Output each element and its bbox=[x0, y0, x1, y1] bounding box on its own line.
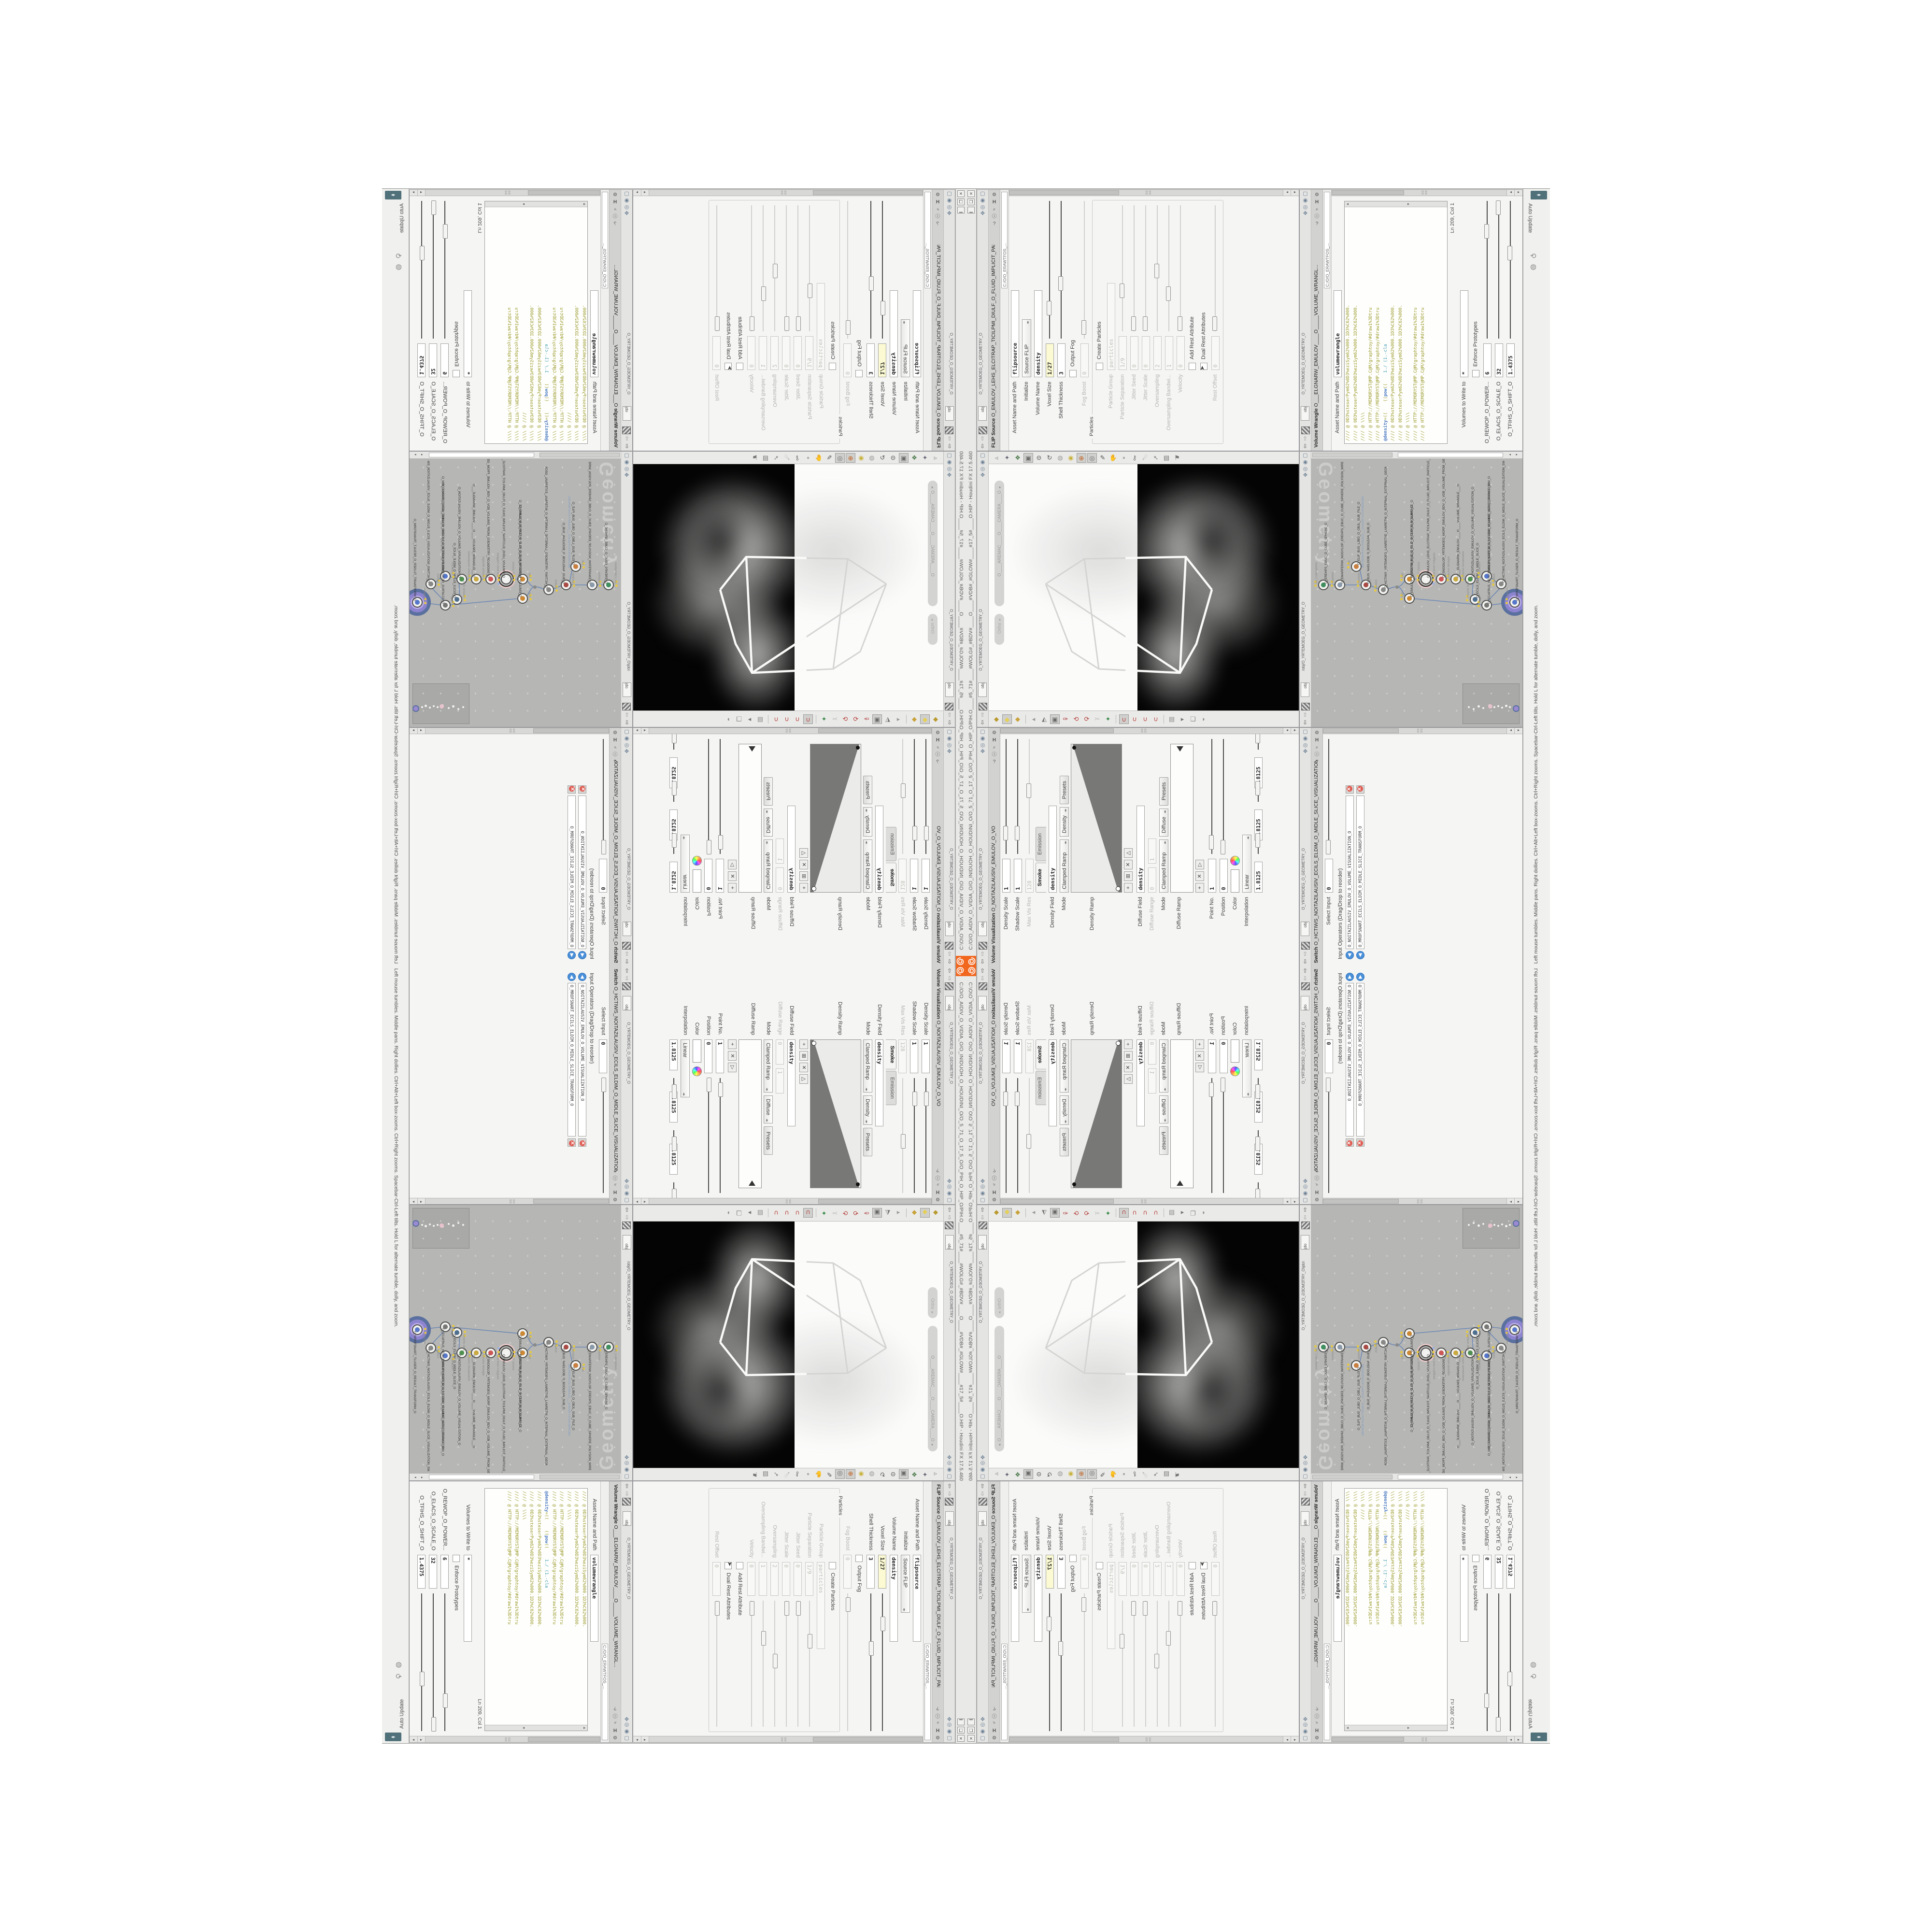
param-field-rest-offset[interactable]: 0 bbox=[1211, 1562, 1220, 1596]
param-field-rest-offset[interactable]: 0 bbox=[713, 1562, 721, 1596]
param-slider[interactable] bbox=[1510, 1593, 1511, 1731]
param-slider[interactable] bbox=[1061, 201, 1062, 339]
param-field-particle-separation[interactable]: 1/9 bbox=[1119, 336, 1127, 370]
pane-layout-icons[interactable]: ▢◉◎✥ bbox=[944, 453, 955, 479]
pane-up-arrow-icon[interactable]: ⇧ bbox=[623, 435, 631, 442]
viewport-render[interactable]: O____AREMAC____O____CAMERA____O ▾ Ortho … bbox=[989, 1222, 1299, 1468]
checkbox-dual-rest-attributes[interactable] bbox=[1200, 1562, 1207, 1569]
shade-icon[interactable]: ◆ bbox=[992, 714, 1001, 724]
param-field-particle-group[interactable]: particles bbox=[817, 1562, 825, 1649]
range-field[interactable]: 0 bbox=[776, 1039, 784, 1065]
network-node[interactable]: O_EMULOV_ROIRETNI_PILC_O_CLIP_INTERIOR_V… bbox=[1404, 593, 1415, 604]
view-star-icon[interactable]: ✦ bbox=[1002, 1470, 1012, 1479]
pane-tab-strip[interactable]: ⚙H⌕ⓘ? Switch O_HCTIWS_NOITAZILAUSIV_ECIL… bbox=[1311, 966, 1323, 1204]
network-node[interactable]: O_ECAFRUS_HTIW_EMULOV_EGREM_O_MERGE_VOLU… bbox=[440, 1321, 451, 1332]
network-node[interactable]: O_EREHPS_EBUC_O_CUBE_SPHERE_Oan_CubeSphe… bbox=[1318, 580, 1329, 590]
checkbox-dual-rest-attributes[interactable] bbox=[725, 363, 732, 370]
tab-smoke[interactable]: Smoke bbox=[886, 863, 896, 893]
pane-header-icons[interactable]: ⚙H⌕ⓘ? bbox=[989, 1166, 1000, 1203]
param-slider[interactable] bbox=[720, 1078, 721, 1193]
network-node[interactable]: O_MROFSNART_TLUSER_O_RESULT_TRANSFORM_OT… bbox=[1509, 1324, 1520, 1335]
pane-layout-icons[interactable]: ▢◉◎✥ bbox=[944, 1177, 955, 1203]
presets-button[interactable]: Presets bbox=[864, 1128, 873, 1156]
obj-badge[interactable]: obj bbox=[623, 1511, 631, 1526]
param-field-oversampling-bandwi-[interactable]: 1 bbox=[1165, 336, 1173, 370]
param-field-asset-name-and-path[interactable]: volumewrangle bbox=[591, 290, 599, 377]
cards-icon[interactable]: ▤ bbox=[1162, 453, 1171, 463]
camera-selector-pill[interactable]: O____AREMAC____O____CAMERA____O ▾ bbox=[994, 1326, 1004, 1451]
view-star-icon[interactable]: ✦ bbox=[1002, 453, 1012, 463]
param-field-jitter-seed[interactable]: 0 bbox=[1130, 336, 1138, 370]
network-node[interactable]: O_HCTIWS_NOITAZILAUSIV_ECILS_ELDIM_O_MID… bbox=[1496, 579, 1506, 589]
param-field-shadow-scale[interactable]: 1 bbox=[1014, 1039, 1022, 1073]
param-slider[interactable] bbox=[847, 201, 848, 339]
pane-up-arrow-icon[interactable]: ⇧ bbox=[946, 951, 953, 957]
operator-name-field[interactable]: O_MROFSNART_ECILS_ELDIM_O_MIDLE_SLICE_TR… bbox=[568, 796, 576, 949]
pane-tab-strip[interactable]: ⚙H⌕ⓘ? FLIP Source O_EMULOV_LEHS_ELCITRAP… bbox=[932, 190, 943, 451]
camera-selector-pill[interactable]: O____AREMAC____O____CAMERA____O ▾ bbox=[928, 1326, 938, 1451]
param-slider[interactable] bbox=[925, 739, 926, 854]
param-slider[interactable] bbox=[751, 1601, 752, 1727]
operator-name-field[interactable]: O_NOITAZILAUSIV_EMULOV_O_VOLUME_VISUALIZ… bbox=[579, 796, 587, 949]
param-field-shadow-scale[interactable]: 1 bbox=[910, 859, 919, 893]
hda-path-field[interactable]: C:/O/O_ERAWTFOS_... bbox=[1324, 1644, 1330, 1740]
pages-icon[interactable]: ▤ bbox=[755, 714, 765, 724]
param-slider[interactable] bbox=[1006, 739, 1007, 854]
checkbox-add-rest-attribute[interactable] bbox=[737, 1562, 744, 1569]
pane-layout-icons[interactable]: ▢◉◎✥ bbox=[621, 1177, 632, 1203]
obj-badge[interactable]: obj bbox=[945, 1235, 954, 1250]
prev-icon[interactable]: ◂ bbox=[1029, 1208, 1038, 1218]
network-node[interactable]: O_EREHPS_EBUC_O_CUBE_SPHERE_Oan_CubeSphe… bbox=[603, 1342, 614, 1352]
param-slider[interactable] bbox=[716, 205, 717, 331]
swirl-icon[interactable]: ◗ bbox=[724, 1208, 733, 1218]
obj-badge[interactable]: obj bbox=[945, 682, 954, 697]
pane-tab-strip[interactable]: ⚙H⌕ⓘ? Volume Visualization O_NOITAZILAUS… bbox=[989, 966, 1000, 1204]
pinwheel-icon[interactable]: ✦ bbox=[1103, 714, 1113, 724]
param-field-oversampling-bandwi-[interactable]: 1 bbox=[759, 1562, 767, 1596]
param-field-position[interactable]: 0 bbox=[1220, 1039, 1228, 1073]
param-field-o-rewop-o-power-[interactable]: 6 bbox=[1483, 1555, 1492, 1589]
mode-dropdown[interactable]: Clamped Ramp bbox=[864, 1039, 873, 1093]
pane-up-arrow-icon[interactable]: ⇧ bbox=[1301, 435, 1309, 442]
param-field-max-vis-res[interactable]: 128 bbox=[1025, 1039, 1034, 1073]
rotate-view-icon[interactable]: ↻ bbox=[1045, 453, 1054, 463]
magnet2-icon[interactable]: ∪ bbox=[1140, 714, 1150, 724]
network-topbar[interactable]: ◂▸ bbox=[1311, 1473, 1522, 1480]
range-field[interactable]: 0 bbox=[776, 867, 784, 893]
param-field-point-no-[interactable]: 1 bbox=[1208, 1039, 1216, 1073]
mode-dropdown[interactable]: Clamped Ramp bbox=[1060, 839, 1069, 893]
pane-tab-strip[interactable]: ⚙H⌕ⓘ? Volume Wrangle O___ELGNARW_EMULOV_… bbox=[1311, 190, 1323, 451]
auto-update-selector[interactable]: Auto Update bbox=[399, 1699, 405, 1729]
dropdown[interactable]: Linear bbox=[681, 835, 690, 893]
network-canvas[interactable]: Geometry +++++++++++++++++++++++++++++++… bbox=[410, 459, 621, 727]
back-icon[interactable]: ◃ bbox=[992, 453, 1001, 463]
diffuse-ramp[interactable] bbox=[739, 744, 762, 893]
obj-badge[interactable]: obj bbox=[978, 1511, 987, 1526]
pane-down-arrow-icon[interactable]: ⇩ bbox=[946, 967, 953, 974]
pane-header-icons[interactable]: ⚙H⌕ⓘ? bbox=[932, 729, 943, 766]
magnet2-icon[interactable]: ∪ bbox=[782, 1208, 792, 1218]
pane-up-arrow-icon[interactable]: ⇧ bbox=[1301, 975, 1309, 981]
scissors-icon[interactable]: ✂ bbox=[1093, 714, 1102, 724]
checkbox-create-particles[interactable] bbox=[829, 1562, 837, 1569]
window-minimize-button[interactable]: ▁ bbox=[957, 1719, 965, 1725]
param-field-asset-name-and-path[interactable]: flipsource bbox=[913, 1555, 922, 1642]
param-field-asset-name-and-path[interactable]: volumewrangle bbox=[591, 1555, 599, 1642]
value-field[interactable]: 1.8125 bbox=[1254, 1039, 1263, 1070]
param-field-density-scale[interactable]: 1 bbox=[922, 859, 930, 893]
ramp-button[interactable]: + bbox=[1124, 1039, 1133, 1049]
param-slider[interactable] bbox=[1211, 1078, 1212, 1193]
window-close-button[interactable]: ✕ bbox=[967, 1735, 975, 1742]
operator-name-field[interactable]: O_NOITAZILAUSIV_EMULOV_O_VOLUME_VISUALIZ… bbox=[1346, 796, 1354, 949]
color-wheel-icon[interactable] bbox=[1230, 856, 1240, 866]
auto-update-selector[interactable]: Auto Update bbox=[399, 203, 405, 233]
param-slider[interactable] bbox=[433, 1593, 434, 1731]
network-node[interactable]: O___ELGNARW_EMULOV____O____VOLUME_WRANGL… bbox=[1450, 574, 1461, 584]
param-field-o-tfihs-o-shift-o[interactable]: 1.4375 bbox=[1506, 343, 1515, 377]
magnet2-icon[interactable]: ∪ bbox=[782, 714, 792, 724]
param-slider[interactable] bbox=[1487, 201, 1488, 339]
pane-up-arrow-icon[interactable]: ⇧ bbox=[946, 1214, 953, 1221]
param-slider[interactable] bbox=[1134, 1601, 1135, 1727]
param-slider[interactable] bbox=[914, 1078, 915, 1193]
scissors-icon[interactable]: ✂ bbox=[830, 714, 839, 724]
arrow-flag-icon[interactable]: ◭ bbox=[1039, 714, 1049, 724]
spin-red-icon[interactable]: ⟲ bbox=[851, 714, 861, 724]
card-icon[interactable]: ▣ bbox=[1050, 714, 1060, 724]
select-box-icon[interactable]: ▣ bbox=[1023, 1470, 1033, 1479]
pane-layout-icons[interactable]: ▢◉◎✥ bbox=[1300, 453, 1311, 479]
magnet3-icon[interactable]: ∪ bbox=[1151, 714, 1161, 724]
shade-sel-icon[interactable]: ◆ bbox=[920, 714, 930, 724]
param-field-max-vis-res[interactable]: 128 bbox=[1025, 859, 1034, 893]
param-slider[interactable] bbox=[1084, 1593, 1085, 1731]
delete-operator-icon[interactable] bbox=[1346, 785, 1354, 794]
pane-layout-icons[interactable]: ▢◉◎✥ bbox=[1300, 1177, 1311, 1203]
ramp-button[interactable]: ⊞ bbox=[1124, 871, 1133, 881]
magnet-icon[interactable]: ∪ bbox=[793, 714, 802, 724]
camera-selector-pill[interactable]: O____AREMAC____O____CAMERA____O ▾ bbox=[994, 481, 1004, 606]
flag-icon[interactable]: ⚑ bbox=[750, 453, 760, 463]
ramp-button[interactable]: ⊞ bbox=[799, 871, 808, 881]
pane-scrollbar[interactable]: ⣿⣿◂▸ bbox=[410, 728, 609, 734]
ramp-button[interactable]: ▷ bbox=[728, 860, 737, 869]
scissors-icon[interactable]: ✂ bbox=[1093, 1208, 1102, 1218]
network-canvas[interactable]: Geometry +++++++++++++++++++++++++++++++… bbox=[410, 1205, 621, 1473]
pane-up-arrow-icon[interactable]: ⇧ bbox=[623, 711, 631, 718]
window-maximize-button[interactable]: ❐ bbox=[967, 1727, 975, 1733]
pane-down-arrow-icon[interactable]: ⇩ bbox=[946, 1482, 953, 1489]
param-slider[interactable] bbox=[1215, 205, 1216, 331]
magnet-icon[interactable]: ∪ bbox=[1130, 714, 1139, 724]
hand-icon[interactable]: ✋ bbox=[1108, 1470, 1118, 1479]
network-canvas[interactable]: Geometry +++++++++++++++++++++++++++++++… bbox=[1311, 1205, 1522, 1473]
pane-scrollbar[interactable]: ⣿⣿◂▸ bbox=[1000, 1198, 1299, 1204]
pane-up-arrow-icon[interactable]: ⇧ bbox=[979, 435, 986, 442]
param-slider[interactable] bbox=[720, 739, 721, 854]
param-field-shadow-scale[interactable]: 1 bbox=[1014, 859, 1022, 893]
hip-sphere-icon[interactable]: ◍ bbox=[396, 1661, 402, 1670]
checkbox-add-rest-attribute[interactable] bbox=[1189, 1562, 1196, 1569]
shade-flat-icon[interactable]: ◆ bbox=[909, 714, 919, 724]
field-dropdown[interactable]: Density bbox=[864, 807, 873, 837]
param-slider[interactable] bbox=[1049, 1593, 1050, 1731]
ramp-button[interactable]: ▷ bbox=[728, 1063, 737, 1072]
param-slider[interactable] bbox=[1168, 205, 1169, 331]
pane-tab-strip[interactable]: ⚙H⌕ⓘ? FLIP Source O_EMULOV_LEHS_ELCITRAP… bbox=[932, 1481, 943, 1742]
tab-smoke[interactable]: Smoke bbox=[1036, 1039, 1046, 1069]
checkbox-dual-rest-attributes[interactable] bbox=[725, 1562, 732, 1569]
globe-icon[interactable]: ◎ bbox=[835, 453, 845, 463]
window-close-button[interactable]: ✕ bbox=[957, 1735, 965, 1742]
network-node[interactable]: O_MROFSNART_TLUSER_O_RESULT_TRANSFORM_OT… bbox=[412, 597, 423, 608]
param-slider[interactable] bbox=[797, 205, 798, 331]
network-node[interactable]: O_ECAFRUS_HTIW_EMULOV_EGREM_O_MERGE_VOLU… bbox=[1481, 600, 1492, 611]
shade-flat-icon[interactable]: ◆ bbox=[1013, 714, 1023, 724]
hda-path-field[interactable]: C:/O/O_ERAWTFOS_... bbox=[602, 1644, 608, 1740]
param-field-jitter-scale[interactable]: 0 bbox=[1142, 1562, 1150, 1596]
viewport-render[interactable]: O____AREMAC____O____CAMERA____O ▾ Ortho … bbox=[989, 464, 1299, 710]
checkbox-enforce-prototypes[interactable] bbox=[1472, 1555, 1479, 1562]
param-slider[interactable] bbox=[925, 1078, 926, 1193]
mode-dropdown[interactable]: Clamped Ramp bbox=[1159, 839, 1168, 893]
param-slider[interactable] bbox=[1215, 1601, 1216, 1727]
window-minimize-button[interactable]: ▁ bbox=[957, 207, 965, 213]
tab-emission[interactable]: Emission bbox=[886, 1071, 896, 1105]
network-node[interactable]: O_EMULOV_ROIRETNI_PILC_O_CLIP_INTERIOR_V… bbox=[517, 1328, 528, 1339]
ramp-button[interactable]: ▷ bbox=[1195, 860, 1204, 869]
clipboard-icon[interactable]: ❏ bbox=[1188, 1208, 1198, 1218]
back-icon[interactable]: ◃ bbox=[992, 1470, 1001, 1479]
network-node[interactable]: O_HCTIWS_YRTEMOEG_LANRETXE_LANRETNI_O_IN… bbox=[1378, 1337, 1389, 1348]
magnet-icon[interactable]: ∪ bbox=[793, 1208, 802, 1218]
spin-red-icon[interactable]: ⟲ bbox=[1071, 1208, 1081, 1218]
reorder-arrow-icon[interactable]: ◀ bbox=[568, 973, 576, 981]
param-field-point-no-[interactable]: 1 bbox=[716, 859, 724, 893]
range-field[interactable]: 1 bbox=[1148, 838, 1156, 864]
pane-up-arrow-icon[interactable]: ⇧ bbox=[623, 975, 631, 981]
param-slider[interactable] bbox=[1223, 1078, 1224, 1193]
network-node[interactable]: O_NOITAZILAUSIV_EMULOV_O_VOLUME_VISUALIZ… bbox=[456, 1348, 467, 1358]
param-field-voxel-size[interactable]: 1/27 bbox=[879, 343, 887, 377]
param-field-o-tfihs-o-shift-o[interactable]: 1.4375 bbox=[1506, 1555, 1515, 1589]
pane-up-arrow-icon[interactable]: ⇧ bbox=[979, 951, 986, 957]
ramp-button[interactable]: △ bbox=[1124, 1074, 1133, 1084]
presets-button[interactable]: Presets bbox=[864, 776, 873, 804]
pane-scrollbar[interactable]: ⣿⣿◂▸ bbox=[633, 728, 932, 734]
spin2-red-icon[interactable]: ⟳ bbox=[840, 1208, 850, 1218]
dropdown[interactable]: Linear bbox=[1242, 1039, 1251, 1097]
diffuse-ramp[interactable] bbox=[1170, 744, 1193, 893]
presets-button[interactable]: Presets bbox=[764, 1126, 773, 1155]
color-swatch[interactable] bbox=[693, 1039, 701, 1063]
field-dropdown[interactable]: Diffuse bbox=[1159, 809, 1168, 837]
range-field[interactable]: 0 bbox=[1148, 1039, 1156, 1065]
operator-name-field[interactable]: O_MROFSNART_ECILS_ELDIM_O_MIDLE_SLICE_TR… bbox=[568, 983, 576, 1136]
statusbar-scroll-box[interactable]: ◂▸ bbox=[385, 191, 401, 199]
param-slider[interactable] bbox=[1006, 1078, 1007, 1193]
obj-badge[interactable]: obj bbox=[623, 996, 631, 1010]
param-field-o-elacs-o-scale-o[interactable]: 32 bbox=[1495, 1555, 1503, 1589]
magnet-icon[interactable]: ∪ bbox=[1130, 1208, 1139, 1218]
param-slider[interactable] bbox=[809, 205, 810, 331]
shade-flat-icon[interactable]: ◆ bbox=[1013, 1208, 1023, 1218]
param-field-volume-name[interactable]: density bbox=[1034, 1555, 1042, 1642]
param-field-jitter-scale[interactable]: 0 bbox=[782, 336, 791, 370]
presets-button[interactable]: Presets bbox=[764, 777, 773, 806]
param-field-asset-name-and-path[interactable]: volumewrangle bbox=[1334, 1555, 1342, 1642]
param-field-volume-name[interactable]: density bbox=[890, 290, 898, 377]
network-node[interactable]: O_SNOGILOP_YRTEMOEG_MORF_EMULOV_BDV_O_VD… bbox=[485, 574, 496, 584]
ramp-button[interactable]: ⊞ bbox=[1124, 1051, 1133, 1061]
pane-up-arrow-icon[interactable]: ⇧ bbox=[1301, 1214, 1309, 1221]
param-field-oversampling[interactable]: 2 bbox=[1153, 1562, 1162, 1596]
pivot-icon[interactable]: ⊕ bbox=[846, 1470, 855, 1479]
obj-badge[interactable]: obj bbox=[1301, 682, 1309, 697]
param-slider[interactable] bbox=[1017, 1078, 1018, 1193]
network-node[interactable]: O_BUS_NAELOOB_O_BOOLEAN_SUB_OBoolean bbox=[1361, 1342, 1371, 1352]
memory-refresh-icon[interactable]: ⟲ bbox=[1530, 252, 1536, 260]
pen-icon[interactable]: ✎ bbox=[1098, 453, 1108, 463]
param-slider[interactable] bbox=[1122, 205, 1123, 331]
param-slider[interactable] bbox=[774, 205, 775, 331]
play-icon[interactable]: ▸ bbox=[1178, 1208, 1187, 1218]
flag-icon[interactable]: ⚑ bbox=[1172, 453, 1182, 463]
statusbar-scroll-box[interactable]: ◂▸ bbox=[1531, 191, 1547, 199]
network-node[interactable]: O_EMULOV_LEHS_ELCITRAP_TICILPMI_DIULF_O_… bbox=[1421, 574, 1431, 584]
pane-down-arrow-icon[interactable]: ⇩ bbox=[623, 443, 631, 450]
ortho-pill[interactable]: Ortho ▾ bbox=[994, 614, 1004, 645]
param-slider[interactable] bbox=[1223, 739, 1224, 854]
network-minimap[interactable] bbox=[412, 1208, 469, 1249]
select-box-icon[interactable]: ▣ bbox=[899, 453, 909, 463]
param-slider[interactable] bbox=[1134, 205, 1135, 331]
fly-icon[interactable]: ➴ bbox=[1151, 1470, 1161, 1479]
code-scrollbar[interactable]: ▲▼ bbox=[485, 1725, 587, 1731]
hand-icon[interactable]: ✋ bbox=[814, 453, 824, 463]
obj-badge[interactable]: obj bbox=[978, 406, 987, 421]
pane-down-arrow-icon[interactable]: ⇩ bbox=[623, 967, 631, 974]
prev-icon[interactable]: ◂ bbox=[894, 714, 903, 724]
network-node[interactable]: O_EMULOV_LEHS_ELCITRAP_TICILPMI_DIULF_O_… bbox=[501, 574, 511, 584]
presets-button[interactable]: Presets bbox=[1060, 776, 1069, 804]
scene-view-icon[interactable]: ❖ bbox=[1013, 1470, 1023, 1479]
param-field-density-field[interactable]: density bbox=[876, 1039, 884, 1126]
reorder-arrow-icon[interactable]: ◀ bbox=[1356, 973, 1364, 981]
delete-operator-icon[interactable] bbox=[568, 785, 576, 794]
window-minimize-button[interactable]: ▁ bbox=[967, 1719, 975, 1725]
hide-icon[interactable]: ⊝ bbox=[888, 453, 898, 463]
field-dropdown[interactable]: Diffuse bbox=[1159, 1095, 1168, 1123]
param-field-jitter-seed[interactable]: 0 bbox=[1130, 1562, 1138, 1596]
param-field-density-scale[interactable]: 1 bbox=[1002, 1039, 1010, 1073]
param-field-volume-name[interactable]: density bbox=[890, 1555, 898, 1642]
ramp-button[interactable]: △ bbox=[799, 848, 808, 858]
magnet3-icon[interactable]: ∪ bbox=[771, 714, 781, 724]
pane-down-arrow-icon[interactable]: ⇩ bbox=[946, 443, 953, 450]
ramp-button[interactable]: + bbox=[1124, 883, 1133, 893]
pane-up-arrow-icon[interactable]: ⇧ bbox=[979, 711, 986, 718]
flag-icon[interactable]: ⚑ bbox=[750, 1470, 760, 1479]
spin-red-icon[interactable]: ⟲ bbox=[1071, 714, 1081, 724]
param-field-volumes-to-write-to[interactable]: * bbox=[1460, 290, 1468, 377]
pane-layout-icons[interactable]: ▢◉◎✥ bbox=[977, 1715, 988, 1741]
play-icon[interactable]: ▸ bbox=[1178, 714, 1187, 724]
pane-tab-strip[interactable]: ⚙H⌕ⓘ? Volume Wrangle O___ELGNARW_EMULOV_… bbox=[609, 190, 621, 451]
ramp-button[interactable]: + bbox=[799, 1039, 808, 1049]
param-slider[interactable] bbox=[1157, 205, 1158, 331]
param-field-shell-thickness[interactable]: 3 bbox=[1057, 1555, 1065, 1589]
pages-icon[interactable]: ▤ bbox=[1167, 1208, 1177, 1218]
param-field-particle-separation[interactable]: 1/9 bbox=[806, 1562, 814, 1596]
pane-down-arrow-icon[interactable]: ⇩ bbox=[979, 958, 986, 965]
obj-badge[interactable]: obj bbox=[978, 922, 987, 936]
network-node[interactable]: O_BUS_NAELOOB_O_BOOLEAN_SUB_OBoolean bbox=[561, 1342, 571, 1352]
pane-header-icons[interactable]: ⚙H⌕ⓘ? bbox=[610, 1705, 621, 1741]
cards-icon[interactable]: ▤ bbox=[761, 453, 770, 463]
network-node[interactable]: O_EMULOV_LEHS_ELCITRAP_TICILPMI_DIULF_O_… bbox=[501, 1348, 511, 1358]
param-field-max-vis-res[interactable]: 128 bbox=[899, 1039, 907, 1073]
arrow-flag-icon[interactable]: ◭ bbox=[1039, 1208, 1049, 1218]
network-node[interactable]: O_SNOGILOP_YRTEMOEG_MORF_EMULOV_BDV_O_VD… bbox=[485, 1348, 496, 1358]
pane-up-arrow-icon[interactable]: ⇧ bbox=[979, 975, 986, 981]
reorder-arrow-icon[interactable]: ◀ bbox=[1346, 973, 1354, 981]
param-slider[interactable] bbox=[603, 1078, 604, 1193]
param-slider[interactable] bbox=[786, 1601, 787, 1727]
presets-button[interactable]: Presets bbox=[1159, 777, 1168, 806]
range-field[interactable]: 1 bbox=[776, 1068, 784, 1094]
light-icon[interactable]: ◉ bbox=[856, 1470, 866, 1479]
rotate-view-icon[interactable]: ↻ bbox=[878, 1470, 887, 1479]
param-field-asset-name-and-path[interactable]: flipsource bbox=[1011, 1555, 1019, 1642]
param-slider[interactable] bbox=[882, 201, 883, 339]
field-dropdown[interactable]: Density bbox=[864, 1095, 873, 1125]
pane-layout-icons[interactable]: ▢◉◎✥ bbox=[621, 1715, 632, 1741]
arrow-flag-icon[interactable]: ◭ bbox=[883, 714, 893, 724]
ramp-button[interactable]: + bbox=[799, 883, 808, 893]
swirl-icon[interactable]: ◗ bbox=[724, 714, 733, 724]
color-swatch[interactable] bbox=[1231, 1039, 1239, 1063]
scene-view-icon[interactable]: ❖ bbox=[1013, 453, 1023, 463]
param-field-shell-thickness[interactable]: 3 bbox=[867, 343, 875, 377]
checkbox-add-rest-attribute[interactable] bbox=[1189, 363, 1196, 370]
reorder-arrow-icon[interactable]: ◀ bbox=[579, 951, 587, 959]
field-dropdown[interactable]: Density bbox=[1060, 807, 1069, 837]
network-node[interactable]: O_EMARFERIW_NOGYLOP_EREHPS_EBUC_O_CUBE_S… bbox=[587, 1342, 597, 1352]
pane-up-arrow-icon[interactable]: ⇧ bbox=[1301, 711, 1309, 718]
pane-layout-icons[interactable]: ▢◉◎✥ bbox=[977, 1453, 988, 1479]
spin2-red-icon[interactable]: ⟳ bbox=[840, 714, 850, 724]
pane-header-icons[interactable]: ⚙H⌕ⓘ? bbox=[1311, 1705, 1322, 1741]
param-field-fog-boost[interactable]: 0 bbox=[844, 1555, 852, 1589]
window-maximize-button[interactable]: ❐ bbox=[967, 199, 975, 205]
shade-flat-icon[interactable]: ◆ bbox=[909, 1208, 919, 1218]
pane-layout-icons[interactable]: ▢◉◎✥ bbox=[944, 1715, 955, 1741]
param-field-asset-name-and-path[interactable]: flipsource bbox=[913, 290, 922, 377]
network-node[interactable]: O_EREHPS_EBUC_O_CUBE_SPHERE_Oan_CubeSphe… bbox=[1318, 1342, 1329, 1352]
arrow-flag-icon[interactable]: ◭ bbox=[883, 1208, 893, 1218]
range-field[interactable]: 1 bbox=[1148, 1068, 1156, 1094]
param-slider[interactable] bbox=[444, 201, 445, 339]
pane-scrollbar[interactable]: ⣿⣿◂▸ bbox=[1009, 1736, 1299, 1742]
camera-selector-pill[interactable]: O____AREMAC____O____CAMERA____O ▾ bbox=[928, 481, 938, 606]
pane-tab-strip[interactable]: ⚙H⌕ⓘ? Volume Visualization O_NOITAZILAUS… bbox=[932, 966, 943, 1204]
pane-tab-strip[interactable]: ⚙H⌕ⓘ? Volume Visualization O_NOITAZILAUS… bbox=[932, 728, 943, 966]
window-close-button[interactable]: ✕ bbox=[967, 190, 975, 197]
